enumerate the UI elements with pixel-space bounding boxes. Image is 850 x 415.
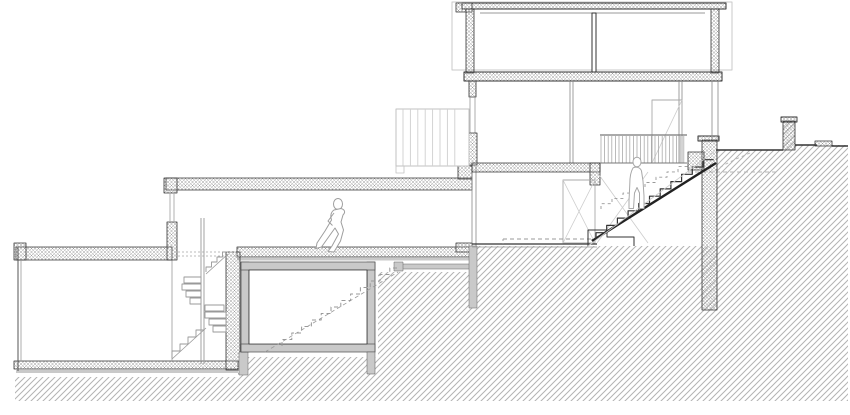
top-floor-slab bbox=[464, 72, 722, 81]
spiral-tread-4 bbox=[190, 298, 201, 304]
wing-parapet-left bbox=[164, 178, 177, 193]
figure-walking-body bbox=[316, 209, 345, 253]
wing-left-wall bbox=[167, 222, 177, 260]
stair-shaft-wall-foundation bbox=[239, 352, 248, 375]
mid-level-wall-right-lines bbox=[712, 81, 718, 140]
top-floor-wall-left bbox=[466, 9, 474, 73]
mid-level-wall-left-lower bbox=[469, 133, 477, 165]
wing-roof-slab bbox=[166, 178, 472, 190]
spiral-tread-6 bbox=[205, 312, 226, 318]
spiral-tread-5 bbox=[205, 305, 224, 311]
main-wall-foundation bbox=[469, 246, 477, 308]
upper-door-diagonal bbox=[652, 100, 682, 163]
spiral-tread-8 bbox=[213, 326, 226, 332]
roof-slab bbox=[462, 3, 726, 9]
left-room-foundation bbox=[16, 370, 238, 373]
spiral-stair-top-flight bbox=[206, 252, 228, 272]
mid-level-window-left bbox=[470, 97, 475, 133]
stair-shaft-wall bbox=[226, 252, 240, 370]
terrace-slab bbox=[237, 247, 472, 257]
drawing-layers bbox=[14, 2, 848, 401]
left-room-parapet bbox=[14, 243, 26, 260]
terrace-slab-subline bbox=[237, 258, 472, 261]
basement-wall-left bbox=[241, 262, 249, 352]
section-drawing bbox=[0, 0, 850, 415]
clerestory-center-mullion bbox=[592, 13, 596, 72]
site-parapet-right bbox=[783, 121, 795, 150]
top-floor-wall-right bbox=[711, 9, 719, 73]
basement-room-interior bbox=[249, 270, 367, 344]
retaining-wall-cap bbox=[698, 136, 719, 141]
mid-floor-slab bbox=[472, 163, 600, 172]
figure-on-stair-head bbox=[633, 157, 641, 167]
stair-guardrail-balusters bbox=[601, 136, 684, 163]
basement-wall-right bbox=[367, 262, 375, 352]
grade-step-cap bbox=[815, 141, 832, 146]
spiral-tread-1 bbox=[184, 277, 201, 283]
main-stair-handrail-line bbox=[588, 152, 714, 246]
lower-level-wall-left-lines bbox=[472, 165, 476, 246]
mid-level-wall-left-upper bbox=[469, 81, 476, 97]
wing-window-frames bbox=[170, 193, 174, 222]
roof-guardrail-foot bbox=[396, 166, 404, 173]
basement-slab-bottom bbox=[241, 344, 375, 352]
spiral-tread-2 bbox=[182, 284, 201, 290]
basement-slab-top bbox=[241, 262, 375, 270]
mid-level-mullion-1 bbox=[570, 81, 573, 163]
spiral-tread-7 bbox=[209, 319, 226, 325]
site-parapet-right-cap bbox=[781, 117, 797, 122]
wing-roof-upturn-right bbox=[458, 166, 472, 179]
figure-on-stair-body bbox=[629, 167, 644, 208]
basement-foundation-right bbox=[367, 352, 375, 374]
left-room-roof-slab bbox=[16, 247, 172, 260]
terrace-foundation-block bbox=[394, 262, 403, 271]
terrace-foundation-line bbox=[398, 264, 470, 269]
figure-walking-head bbox=[334, 199, 343, 210]
section-drawing-page bbox=[0, 0, 850, 415]
spiral-tread-3 bbox=[186, 291, 201, 297]
